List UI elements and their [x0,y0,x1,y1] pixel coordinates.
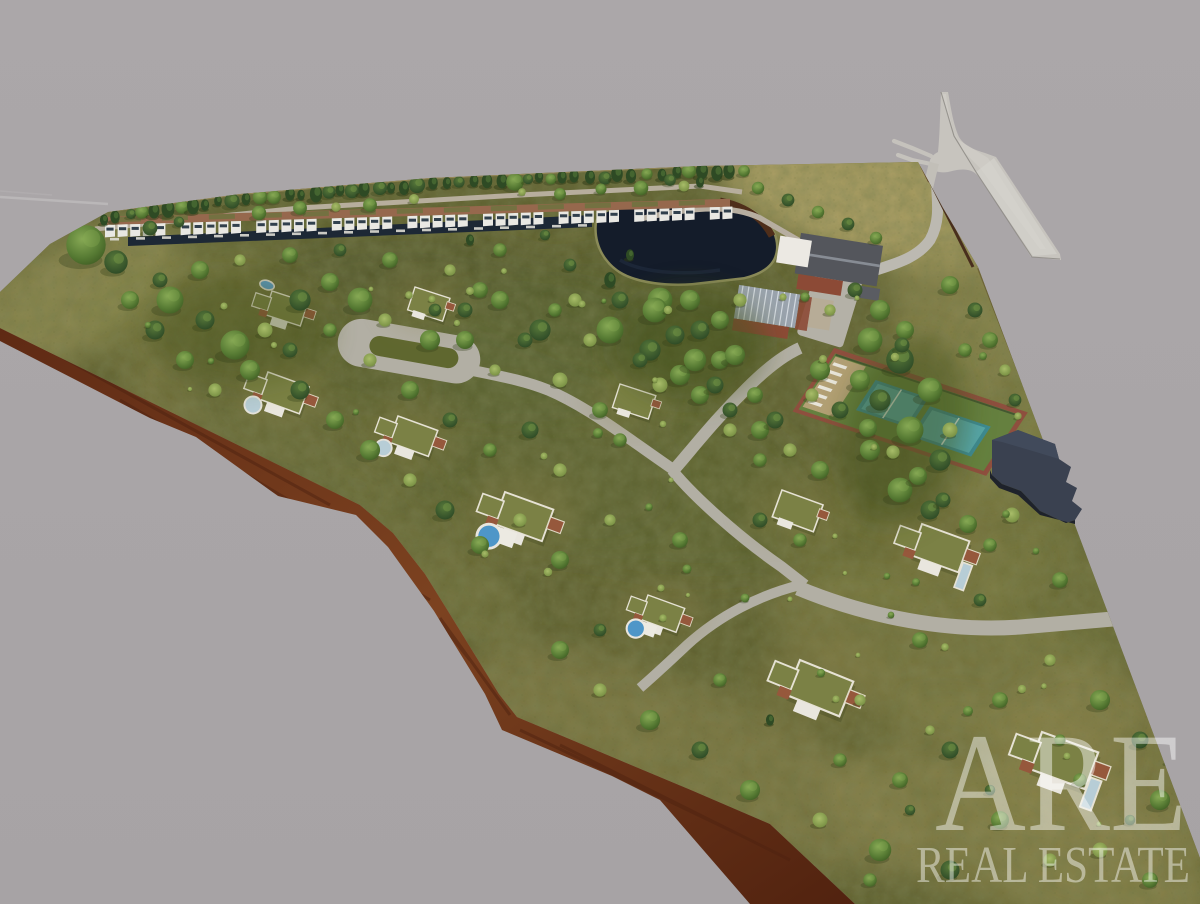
svg-text:REAL ESTATE: REAL ESTATE [916,837,1190,894]
